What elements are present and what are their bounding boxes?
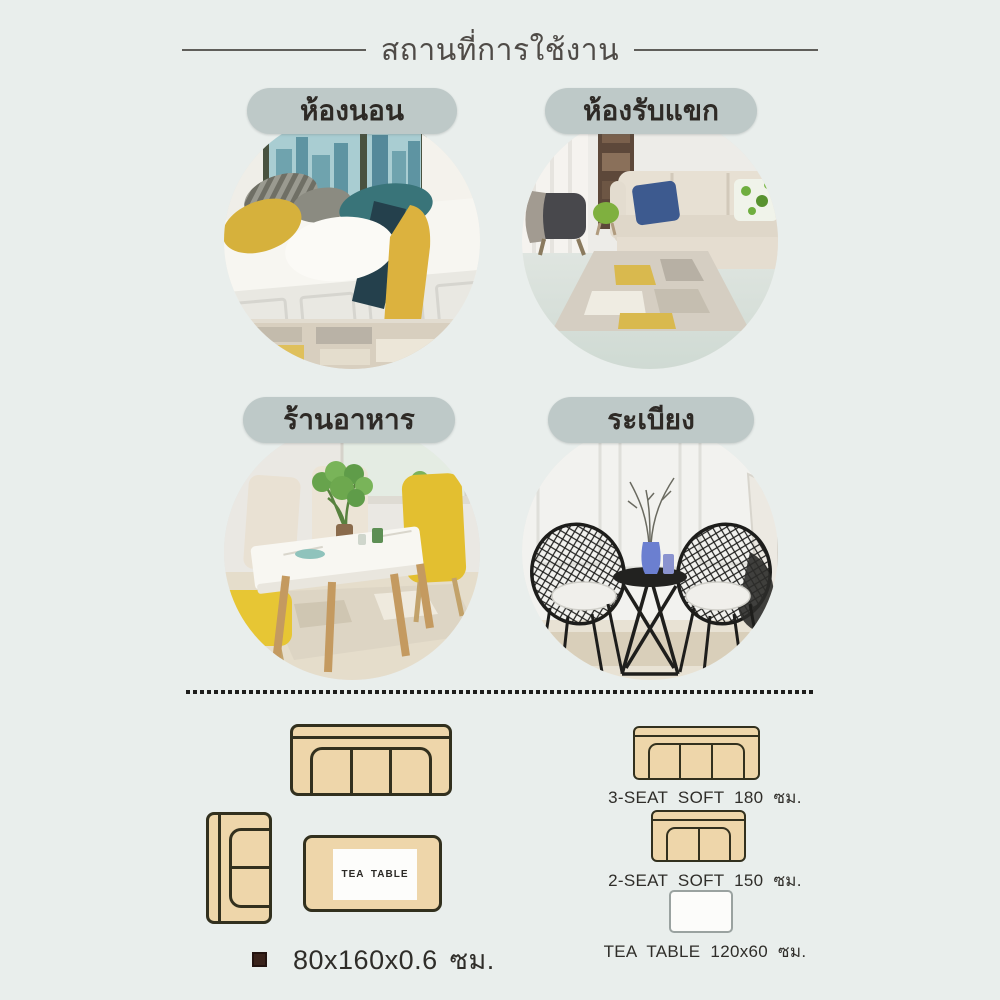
bedroom-photo-illustration [224,113,480,369]
bedroom-scene [224,113,480,369]
living-room-photo [522,113,778,369]
bedroom-photo [224,113,480,369]
blue-pillow [631,180,680,226]
living-room-label: ห้องรับแขก [545,88,757,134]
header-rule-right [634,49,818,51]
plate [295,549,325,559]
rug-size-text: 80x160x0.6 ซม. [293,938,495,981]
dotted-divider [186,690,814,694]
page-title: สถานที่การใช้งาน [381,27,619,74]
usage-infographic: สถานที่การใช้งาน ห้องนอน ห้องรับแขก ร้าน… [0,0,1000,1000]
legend-3-seat-label: 3-SEAT SOFT 180 ซม. [590,784,820,811]
restaurant-photo-illustration [224,424,480,680]
3-seat-sofa-icon [633,726,760,780]
header-rule-left [182,49,366,51]
living-room-photo-illustration [522,113,778,369]
2-seat-sofa-icon [651,810,746,862]
balcony-scene [522,424,778,680]
restaurant-photo [224,424,480,680]
patchwork-rug [230,323,474,369]
tea-table-icon [669,890,733,933]
restaurant-scene [224,424,480,680]
rug-size-caption: 80x160x0.6 ซม. [252,938,495,981]
balcony-photo-illustration [522,424,778,680]
leaf-pillow [734,179,778,221]
floor-rug [544,632,758,666]
floor-plan-tea-table: TEA TABLE [333,849,417,900]
section-header: สถานที่การใช้งาน [0,30,1000,70]
bedroom-label: ห้องนอน [247,88,457,134]
floor-rug [264,584,480,660]
balcony-photo [522,424,778,680]
legend-tea-table-label: TEA TABLE 120x60 ซม. [590,938,820,965]
restaurant-label: ร้านอาหาร [243,397,455,443]
white-cup [358,534,366,545]
floor-plan-2-seat-sofa [206,812,272,924]
floor-plan-3-seat-sofa [290,724,452,796]
living-room-scene [522,113,778,369]
square-bullet-icon [252,952,267,967]
green-cup [372,528,383,543]
floor-plan-rug: TEA TABLE [303,835,442,912]
balcony-label: ระเบียง [548,397,754,443]
